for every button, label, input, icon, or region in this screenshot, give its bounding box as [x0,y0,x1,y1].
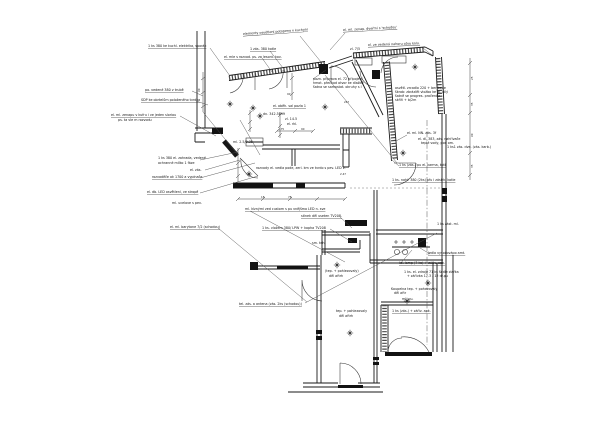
annotation-label: po. vedené 380 v trubě [145,88,184,92]
blueprint-canvas: 1 ks 380 ke kuchl. elektrika, sporák ele… [0,0,600,423]
dimension-value: 247 [344,100,349,104]
annotation-label: + zářivka 17.3 - 12 dr.pu [407,274,448,278]
annotation-label: ochranné mlíko 1 fáze [158,161,195,165]
annotation-label: děl ařtr [394,291,407,295]
annotation-label: děl ařtrh [329,274,343,278]
annotation-note: šatna se samostat. okruhy s l [313,85,362,89]
annotation-label: 1 ks. nahř. 380 (2ks) pfu i zástrk. kotl… [392,178,455,182]
dimension-value: 35 [470,164,474,168]
annotation-label: sm. teh. [312,241,325,245]
annotation-label: Jedla vysočovápo amt. [427,251,465,255]
dimension-value: 35 [470,102,474,106]
floor-plan-drawing: 1 ks 380 ke kuchl. elektrika, sporák ele… [0,0,600,423]
annotation-label: el. ze vedená nahoru otvo kolu. [368,41,420,47]
annotation-label: el. ml. NN. zás. 3f [407,131,437,135]
annotation-label: el. ml. zenap. dveřmi s 'schodou' [343,25,398,32]
annotation-label: ml. klznými zed custom s pu vnějšmo LED … [245,207,325,211]
ceiling-light-icon [246,171,252,177]
annotation-label: SDP ke obrtelům položeného tvrdka [141,98,200,102]
annotation-label: 1 ks. vložem 380/ LPW + kopha TV208 [262,226,326,230]
annotation-label: zl. 14.5 [285,117,297,121]
dimension-value: 90 [197,88,201,92]
annotation-label: rozvody el. vedla pode, zerl. km ve tvrd… [256,166,346,170]
ceiling-light-icon [425,280,431,286]
annotation-label: 1 ks 380 ke kuchl. elektrika, sporák [148,44,206,48]
annotation-label: elementy osvětlení potopeno v kuchyni [243,27,308,36]
annotation-label: ks. lamp (7 ks) + zářiv. apk. [399,261,445,265]
annotation-label: el. oběh. sal pozla 1 [273,104,306,108]
dimension-value: 2.47 [340,172,346,176]
ceiling-light-icon [227,101,233,107]
annotation-label: tel. zás. a antena (zás. 2ks (schodou)) [239,302,302,306]
page: { "page": { "background": "#ffffff", "in… [0,0,600,423]
annotation-label: 1 ks zást. ml. [437,222,459,226]
annotation-label: el. mle s rozvod. ps. za lesont. kov. [224,55,282,59]
annotation-label: 1 ks (zás.) + zářiv. apk. [392,309,431,313]
annotation-label: ml. pu. [402,297,413,301]
ceiling-light-icons [227,64,431,336]
annotation-label: dn. 342.5099 [263,112,285,116]
door-swings [230,57,429,384]
annotation-label: ml. ucelove s pev. [172,201,202,205]
ceiling-light-icon [412,64,418,70]
dimension-value: 90 [301,127,305,131]
annotation-label: rozvaděče ok 1700 a vypínače [152,175,202,179]
wall-fills [212,64,447,388]
ceiling-light-icon [322,104,328,110]
annotation-label: el. rkl. [287,122,297,126]
annotation-label: ml. 2.5/9.35 [233,140,253,144]
annotation-label: (tep. + pohlezovaly) [325,269,359,273]
ceiling-light-icon [334,262,340,268]
annotation-label: el. ml. barytone 7/2 (schodou) [170,225,220,229]
annotation-label: stínek děl useten TV208. [301,214,342,218]
dimension-value: 90 [287,92,291,96]
fixture-cross-icons [394,240,414,244]
annotation-label: 1 ks 380 el. zahrada, vedené [158,156,206,160]
dimension-value: 25 [470,76,474,80]
ceiling-light-icon [347,330,353,336]
annotation-label: ps. ta vle m rozvodu [118,118,152,122]
dimension-value: 90 [470,133,474,137]
annotation-label: el. db. LED osvětlení, ve stropě [147,190,198,194]
annotation-label: el. zás. [190,168,202,172]
dimension-value: 175 [279,127,284,131]
annotation-label: el. ml. zenapu v kufru i ve jeden sloria… [111,113,176,117]
annotation-label: tep. + pohlezovaly [336,309,367,313]
annotation-label: děl ařtrh [339,314,353,318]
annotation-note: skříň + b/2m [395,98,416,102]
basin-fixture [394,249,399,254]
annotation-label: 1 ks1 zás. dve. (zás. karb.) [447,145,491,149]
annotation-label: 1 ks (zás.) pu el. karma, kotl [399,163,446,167]
annotation-label: zl. 7/5 [350,47,360,51]
ceiling-light-icon [250,105,256,111]
dimension-value: 18 [261,195,265,199]
dimension-value: 78 [288,195,292,199]
ceiling-light-icon [400,150,406,156]
annotation-label: 1 zás. 380 kotle [250,47,276,51]
